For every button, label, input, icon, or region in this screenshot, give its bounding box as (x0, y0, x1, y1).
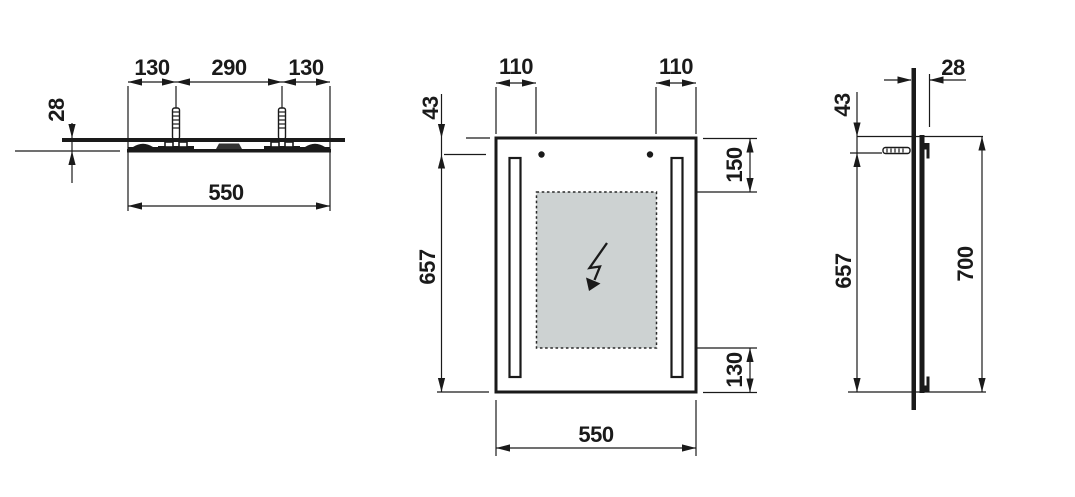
mounting-hole (538, 151, 544, 157)
heater-pad (537, 192, 657, 348)
wall-line (62, 138, 345, 142)
side-view-extension-lines (848, 74, 986, 392)
dim-label-left-hole: 130 (134, 55, 169, 80)
dim-label-top-to-heater: 150 (722, 147, 747, 182)
dim-label-hole-to-bottom: 657 (415, 249, 440, 284)
side-view: 28 43 657 700 (830, 55, 986, 410)
dim-heater-to-bottom: 130 (722, 348, 754, 393)
dim-label-hole-spacing: 290 (211, 55, 246, 80)
led-strip (672, 158, 683, 377)
end-clip (128, 144, 158, 149)
mounting-bracket (925, 377, 930, 393)
dim-side-depth: 28 (884, 55, 966, 84)
dim-hole-inset-right: 110 (656, 54, 696, 87)
mounting-hardware (128, 142, 330, 149)
dim-side-hole-to-bottom: 657 (831, 253, 861, 392)
dim-label-width: 550 (208, 180, 243, 205)
dim-label-side-top-to-hole: 43 (830, 93, 855, 117)
dim-label-hole-inset-left: 110 (499, 54, 533, 79)
dim-label-right-hole: 130 (288, 55, 323, 80)
dim-label-hole-inset-right: 110 (659, 54, 693, 79)
mirror-glass-profile (920, 135, 925, 393)
dim-hole-inset-left: 110 (496, 54, 536, 87)
led-strip (510, 158, 521, 377)
dim-top-to-heater: 150 (722, 139, 754, 193)
dim-label-top-to-hole: 43 (418, 96, 443, 120)
dim-front-width: 550 (496, 422, 696, 452)
mirror-technical-drawing: 130 290 130 (0, 0, 1075, 497)
dim-label-heater-to-bottom: 130 (722, 352, 747, 387)
center-support (216, 144, 242, 150)
mounting-bracket (158, 142, 194, 149)
dim-label-side-height: 700 (953, 246, 978, 281)
wall-plug-icon (279, 108, 286, 139)
dim-side-height: 700 (953, 137, 986, 393)
dim-top-to-hole: 43 (418, 94, 445, 392)
wall-plug-icon (883, 148, 910, 154)
dim-label-depth: 28 (44, 98, 69, 122)
front-view: 110 110 43 657 150 (415, 54, 757, 456)
mounting-bracket (925, 143, 930, 159)
dim-side-top-to-hole: 43 (830, 92, 861, 392)
mirror-glass-plan (127, 149, 331, 153)
dim-width: 550 (128, 180, 330, 210)
end-clip (300, 144, 330, 149)
dim-label-side-hole-to-bottom: 657 (831, 253, 856, 288)
mounting-hole (647, 151, 653, 157)
wall-plug-icon (173, 108, 180, 139)
dim-hole-positions: 130 290 130 (128, 55, 330, 86)
top-view: 130 290 130 (15, 55, 345, 211)
dim-hole-to-bottom: 657 (415, 249, 445, 392)
wall-line (912, 68, 917, 410)
dim-label-side-depth: 28 (941, 55, 965, 80)
dim-label-front-width: 550 (578, 422, 613, 447)
mounting-bracket (264, 142, 300, 149)
